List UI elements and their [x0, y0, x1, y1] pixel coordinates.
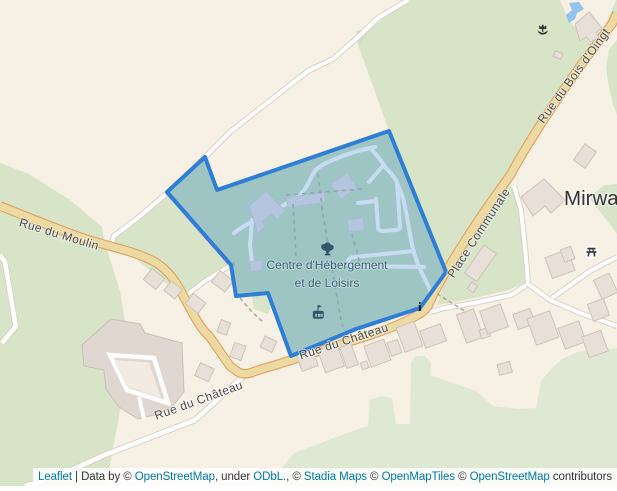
svg-text:et de Loisirs: et de Loisirs [295, 276, 360, 290]
svg-text:i: i [418, 299, 422, 314]
svg-text:Mirwart: Mirwart [564, 187, 617, 210]
svg-text:Centre d'Hébergement: Centre d'Hébergement [266, 258, 388, 272]
